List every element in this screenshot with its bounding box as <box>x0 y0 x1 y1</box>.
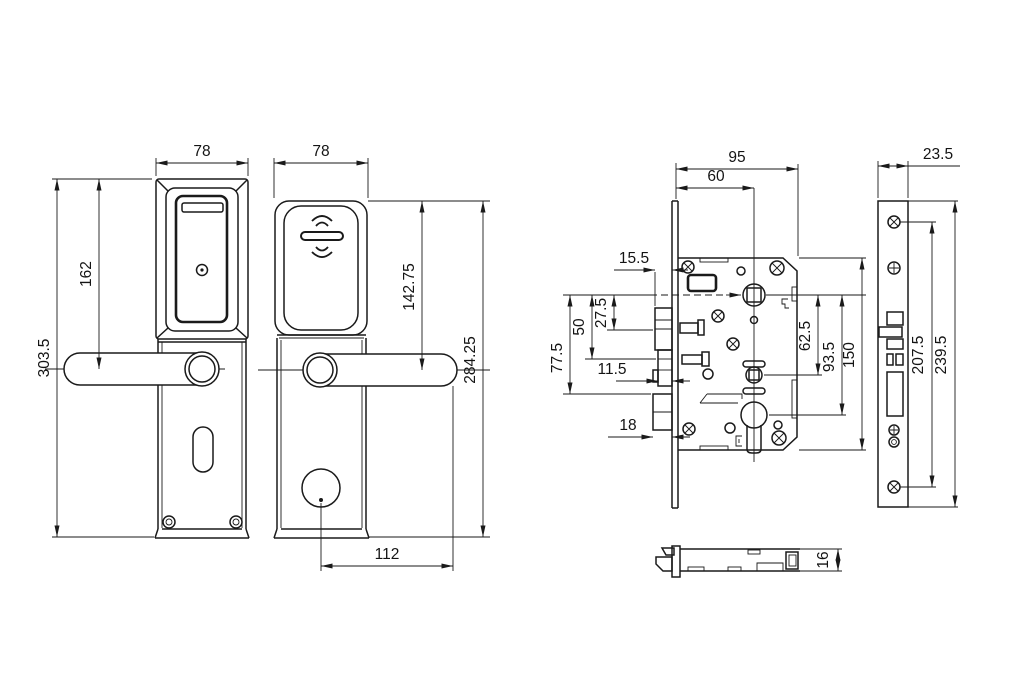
interior-dimensions: 78 162 303.5 <box>36 143 248 537</box>
bolt-tails <box>680 320 709 366</box>
dim-case-width: 95 <box>728 149 745 166</box>
dim-profile-thickness: 16 <box>815 551 832 568</box>
deadbolt-cutout <box>887 372 903 416</box>
technical-drawing-canvas: 78 162 303.5 <box>0 0 1024 682</box>
cylinder-clip <box>736 436 742 446</box>
dim-aux-projection: 18 <box>619 417 636 434</box>
dim-latch-projection: 15.5 <box>619 250 649 267</box>
dim-exterior-handle-span: 112 <box>375 546 400 563</box>
display-panel <box>176 196 227 322</box>
dim-interior-top-width: 78 <box>193 143 210 160</box>
dim-faceplate-length: 239.5 <box>933 336 950 375</box>
card-reader-module <box>275 201 367 338</box>
latch-bolt-block <box>655 308 672 350</box>
interior-lock-view: 78 162 303.5 <box>36 143 249 538</box>
dim-backset: 60 <box>707 168 725 185</box>
dim-hub-spacing: 62.5 <box>797 321 814 351</box>
profile-dimensions: 16 <box>800 549 842 571</box>
dim-handle-to-deadbolt: 50 <box>571 318 588 336</box>
rfid-signal-icon <box>301 216 343 257</box>
exterior-lock-view: 78 142.75 284.25 112 <box>258 143 490 571</box>
euro-cylinder-profile <box>736 402 767 453</box>
profile-case <box>680 549 800 571</box>
dim-handle-to-latch: 27.5 <box>593 298 610 328</box>
faceplate-front-view: 23.5 207.5 239.5 <box>878 146 960 507</box>
dim-deadbolt-projection: 11.5 <box>597 361 626 378</box>
dim-case-height: 150 <box>841 342 858 368</box>
dim-handle-to-aux: 77.5 <box>549 343 566 373</box>
panel-slot <box>182 203 223 212</box>
dim-interior-top-to-handle: 162 <box>78 261 95 287</box>
dim-faceplate-screw-spacing: 207.5 <box>910 336 927 375</box>
aux-bolt-block <box>653 394 672 430</box>
escutcheon-top <box>156 179 248 342</box>
dim-exterior-top-width: 78 <box>312 143 329 160</box>
profile-faceplate-bar <box>672 546 680 577</box>
exterior-handle <box>303 353 457 387</box>
mortise-lock-body-view: 95 60 15.5 27.5 50 77.5 11.5 18 <box>549 149 866 508</box>
keyhole-slot <box>193 427 213 472</box>
mortise-faceplate-strip <box>672 201 678 508</box>
screw-bottom-right <box>230 516 242 528</box>
deadbolt-inside <box>700 394 742 403</box>
screw-top <box>888 216 900 228</box>
dim-exterior-overall-height: 284.25 <box>462 336 479 383</box>
hub-clip <box>782 299 789 308</box>
case-screws <box>682 261 786 445</box>
interior-handle <box>64 352 219 386</box>
spindle-hub <box>639 188 765 462</box>
lock-drawing-svg: 78 162 303.5 <box>0 0 1024 682</box>
latch-tip-lower <box>656 557 672 571</box>
faceplate-cutouts <box>879 216 903 493</box>
screw-lower <box>889 425 899 435</box>
hole-lower <box>889 437 899 447</box>
mortise-dimensions: 95 60 15.5 27.5 50 77.5 11.5 18 <box>549 149 866 450</box>
dim-cylinder-spacing: 93.5 <box>821 342 838 372</box>
dim-exterior-top-to-handle: 142.75 <box>401 263 418 310</box>
screw-bottom-left <box>163 516 175 528</box>
dim-interior-overall-height: 303.5 <box>36 339 53 378</box>
latch-follower <box>688 275 716 291</box>
screw-bottom <box>888 481 900 493</box>
lock-profile-view: 16 <box>656 546 842 577</box>
screw-upper <box>888 262 900 274</box>
dim-faceplate-width: 23.5 <box>923 146 953 163</box>
